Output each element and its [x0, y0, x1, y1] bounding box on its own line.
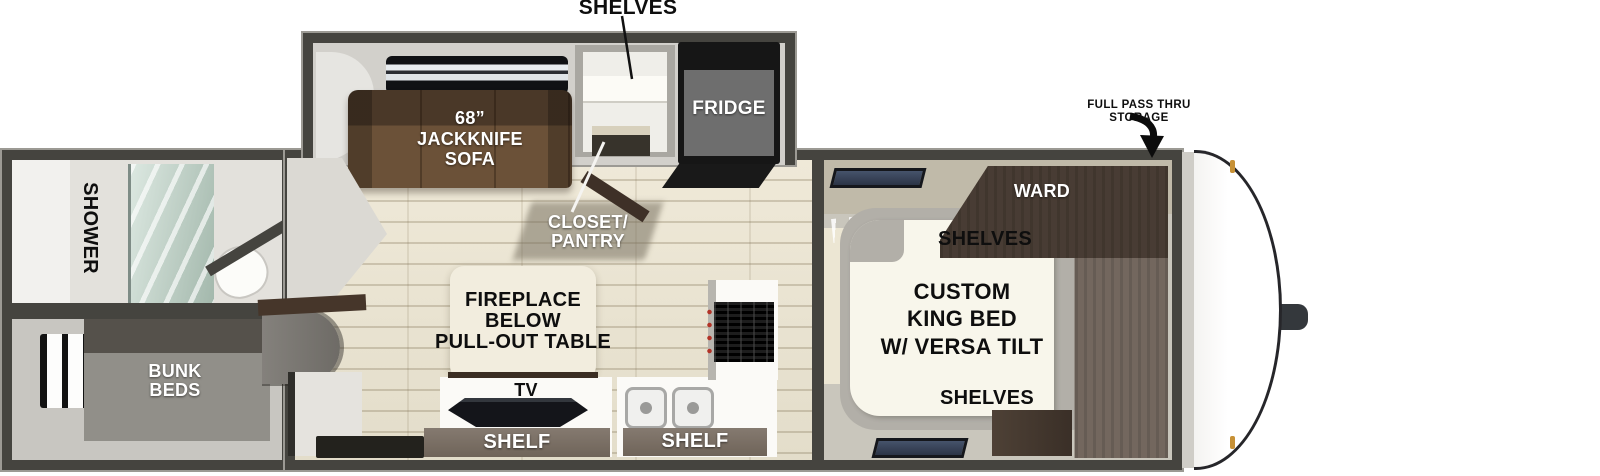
closet-pantry-label-line2: PANTRY — [525, 232, 651, 251]
bunk-headboard — [84, 319, 270, 353]
tv-label: TV — [440, 381, 612, 400]
bunk-beds-label: BUNK BEDS — [100, 362, 250, 401]
shelf-right: SHELF — [623, 428, 767, 456]
king-bed-label: CUSTOM KING BED W/ VERSA TILT — [843, 278, 1081, 360]
closet-pantry-label-line1: CLOSET/ — [525, 213, 651, 232]
bedroom-divider-wall — [812, 150, 824, 470]
shelves-cabinet-shelf — [583, 76, 667, 103]
bunk-beds-label-line2: BEDS — [100, 381, 250, 400]
shower-wall-panel — [12, 160, 70, 305]
rear-room-divider-wall — [2, 303, 292, 319]
fridge-label: FRIDGE — [680, 99, 778, 120]
roof-vent-top — [830, 168, 927, 188]
shower-glass-door — [128, 164, 214, 304]
stove-cooktop — [714, 302, 774, 362]
sofa-label-line2: JACKKNIFE — [370, 129, 570, 150]
entry-door-mat — [316, 436, 424, 458]
bunk-window — [40, 334, 90, 408]
ward-label: WARD — [1000, 182, 1084, 201]
shelves-lower-label: SHELVES — [902, 388, 1072, 410]
sofa-label-line3: SOFA — [370, 149, 570, 170]
kitchen-sink-right — [672, 387, 714, 429]
shelf-right-label: SHELF — [661, 431, 728, 453]
shelf-left-label: SHELF — [483, 432, 550, 454]
shelves-top-label: SHELVES — [552, 0, 704, 20]
shelves-upper-label: SHELVES — [900, 229, 1070, 251]
fireplace-label-line3: PULL-OUT TABLE — [418, 332, 628, 353]
tv-counter-back-edge — [448, 372, 598, 378]
king-bed-label-line2: KING BED — [843, 305, 1081, 332]
pass-thru-label-line2: STORAGE — [1070, 112, 1208, 125]
floorplan-canvas: SHOWER BUNK BEDS 68” JACKKNIFE SOFA FRID… — [0, 0, 1600, 476]
pass-thru-storage-band — [1182, 152, 1194, 468]
marker-light-bottom — [1230, 436, 1235, 449]
fireplace-label-line2: BELOW — [418, 311, 628, 332]
stove-knobs — [707, 306, 712, 360]
sofa-label: 68” JACKKNIFE SOFA — [370, 108, 570, 170]
kitchen-sink-left — [625, 387, 667, 429]
pass-thru-label-line1: FULL PASS THRU — [1070, 99, 1208, 112]
sofa-window — [386, 56, 568, 94]
shower-label: SHOWER — [76, 168, 100, 288]
marker-light-top — [1230, 160, 1235, 173]
closet-pantry-opening — [592, 126, 650, 156]
roof-vent-bottom — [872, 438, 969, 458]
fireplace-label-line1: FIREPLACE — [418, 290, 628, 311]
tv-unit — [448, 398, 588, 427]
king-bed-label-line3: W/ VERSA TILT — [843, 333, 1081, 360]
bunk-beds-label-line1: BUNK — [100, 362, 250, 381]
pass-thru-storage-label: FULL PASS THRU STORAGE — [1070, 99, 1208, 125]
bedroom-lower-cabinet — [992, 410, 1072, 456]
shelf-left: SHELF — [424, 428, 610, 457]
king-bed-label-line1: CUSTOM — [843, 278, 1081, 305]
front-cap — [1194, 150, 1282, 470]
sofa-label-line1: 68” — [370, 108, 570, 129]
closet-pantry-label: CLOSET/ PANTRY — [525, 213, 651, 252]
fireplace-label: FIREPLACE BELOW PULL-OUT TABLE — [418, 290, 628, 354]
